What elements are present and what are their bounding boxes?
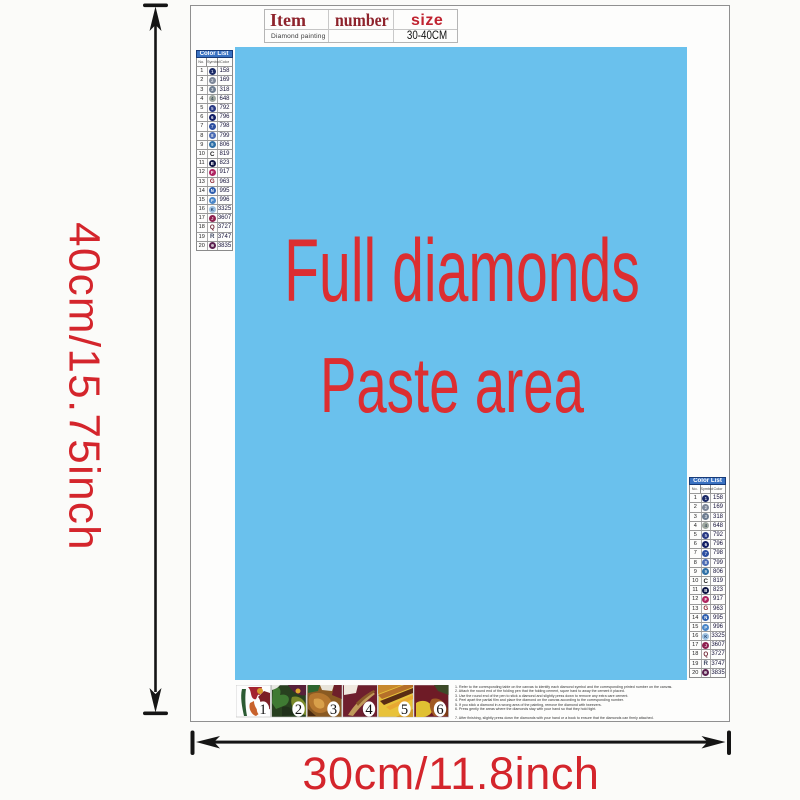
- svg-text:1: 1: [259, 702, 266, 718]
- svg-text:2: 2: [295, 702, 302, 718]
- svg-text:4: 4: [365, 702, 373, 718]
- svg-text:3: 3: [330, 702, 337, 718]
- svg-text:5: 5: [401, 702, 408, 718]
- svg-text:6: 6: [436, 702, 443, 718]
